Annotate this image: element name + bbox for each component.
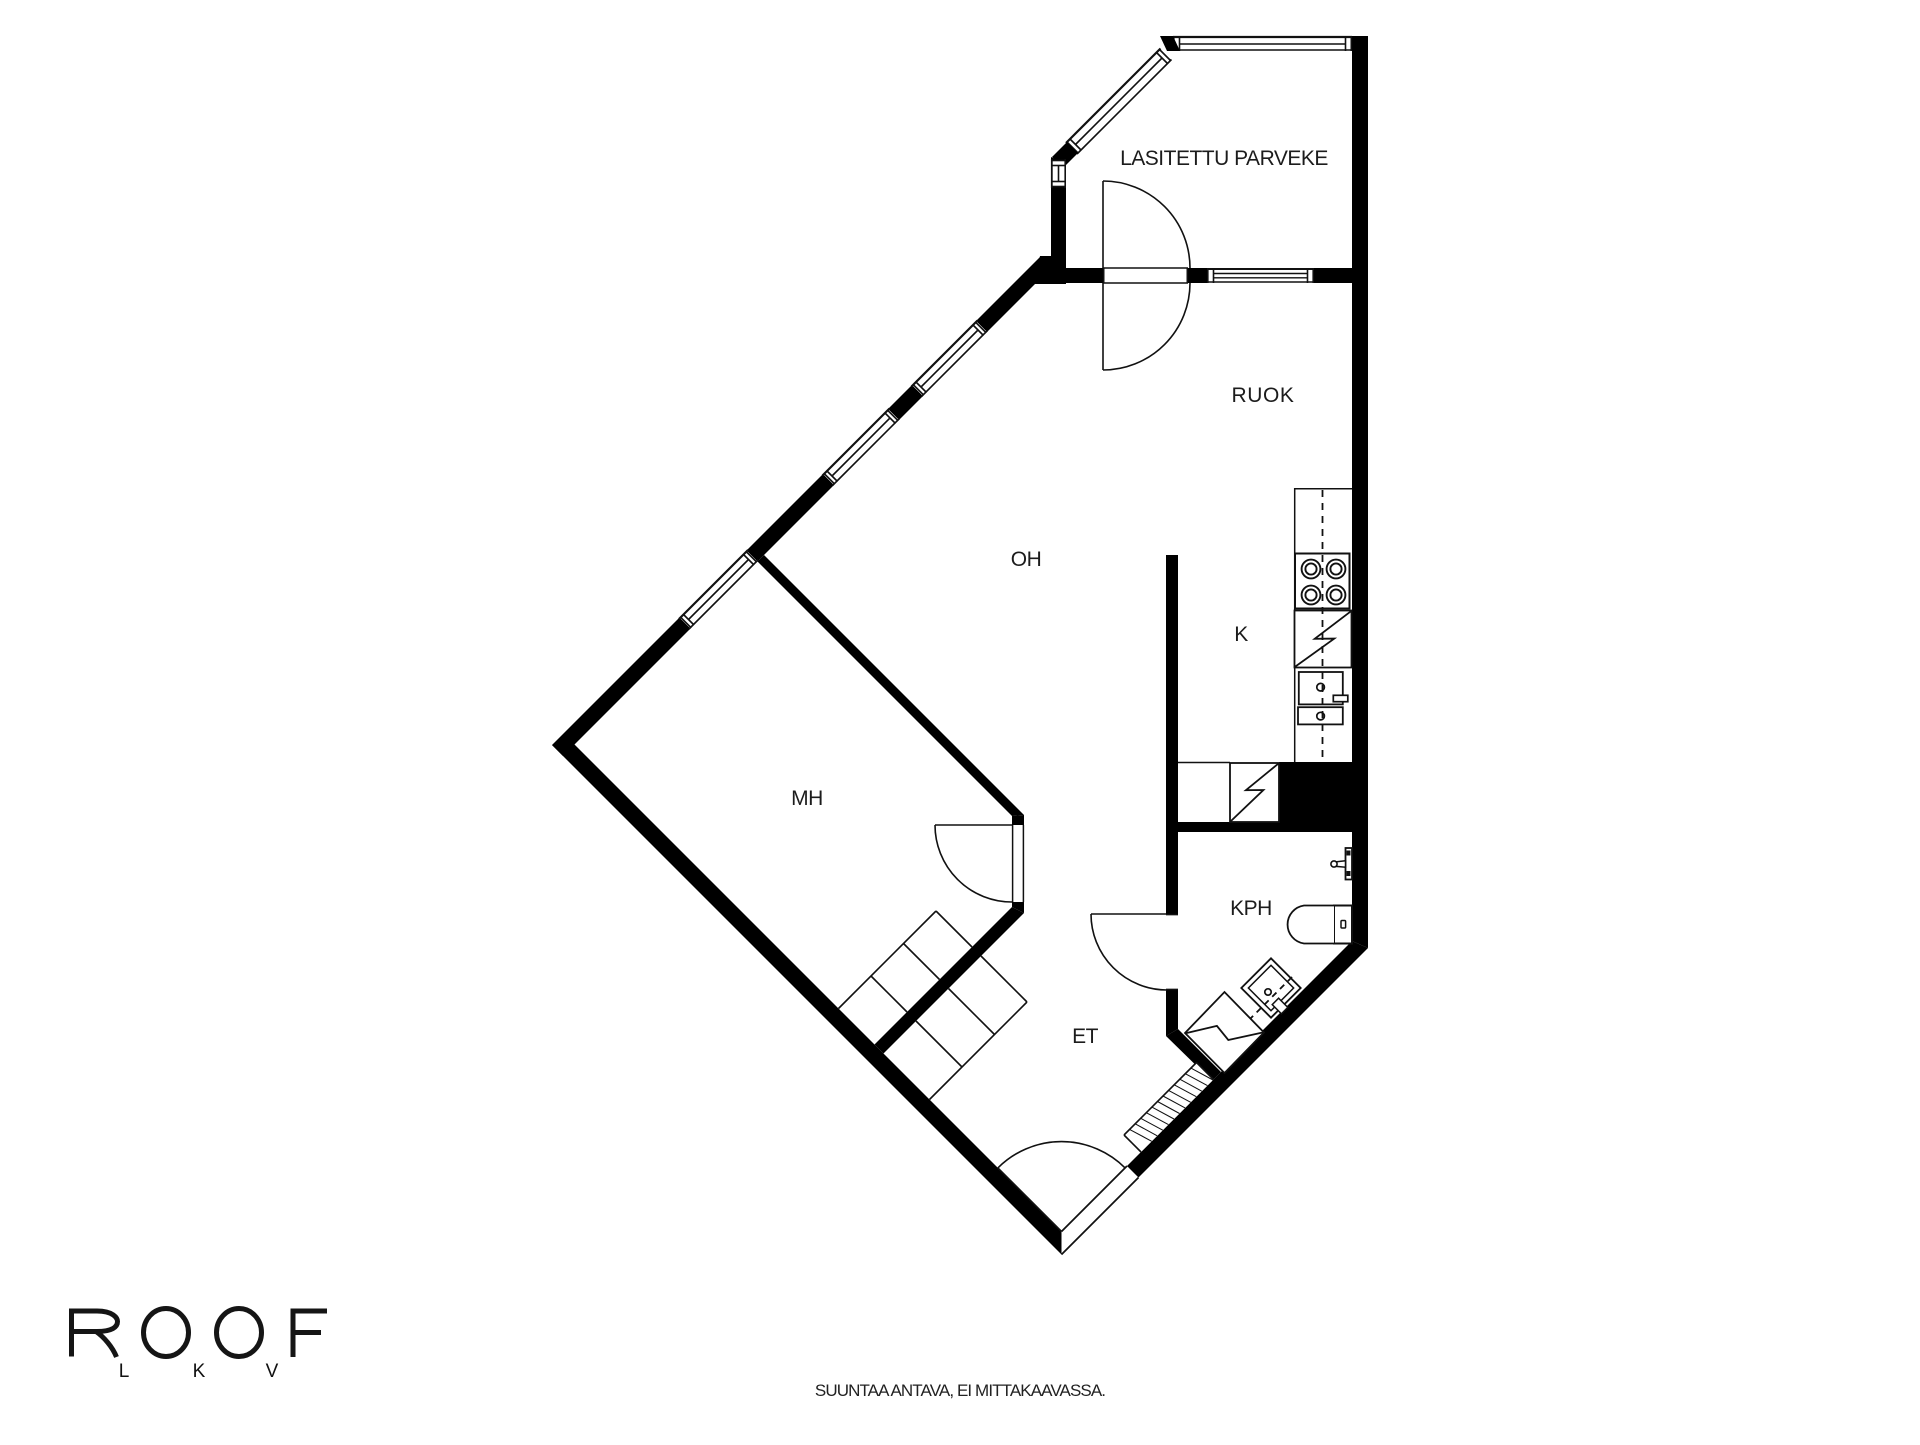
svg-text:K: K [1234,623,1248,646]
svg-text:K: K [193,1361,206,1382]
svg-text:SUUNTAA ANTAVA, EI MITTAKAAVAS: SUUNTAA ANTAVA, EI MITTAKAAVASSA. [815,1381,1105,1400]
svg-text:KPH: KPH [1230,897,1272,920]
svg-text:RUOK: RUOK [1231,384,1294,407]
svg-text:OH: OH [1011,548,1042,571]
svg-text:L: L [119,1361,130,1382]
svg-text:ET: ET [1072,1025,1099,1048]
svg-text:V: V [266,1361,279,1382]
svg-text:MH: MH [791,787,823,810]
svg-text:LASITETTU PARVEKE: LASITETTU PARVEKE [1120,147,1328,170]
